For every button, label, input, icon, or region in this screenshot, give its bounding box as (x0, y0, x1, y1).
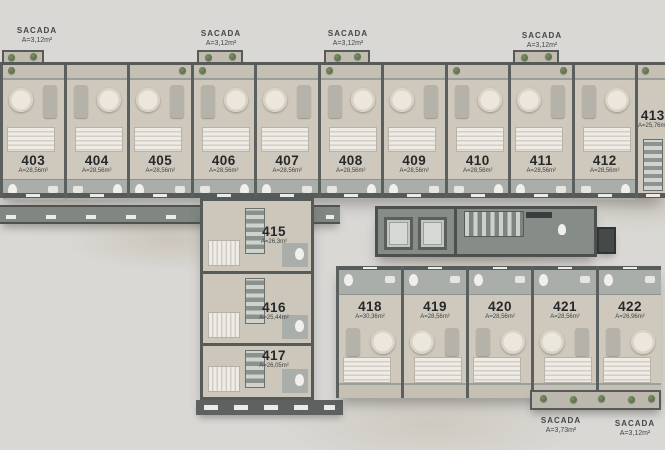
bathroom (339, 270, 401, 295)
unit-406: 406A=28,56m² (191, 65, 255, 198)
bed-area (321, 126, 382, 152)
balcony (324, 50, 370, 64)
unit-balcony (194, 65, 255, 80)
toilet-icon (558, 224, 566, 235)
unit-area: A=28,56m² (511, 168, 572, 175)
unit-area: A=28,56m² (448, 168, 509, 175)
unit-area: A=25,76m² (638, 123, 665, 130)
bathroom (599, 270, 661, 295)
unit-area: A=28,56m² (469, 314, 531, 321)
sink-icon (515, 276, 525, 283)
entry-door (384, 193, 445, 198)
bed-area (67, 126, 128, 152)
plant-icon (179, 67, 186, 74)
entry-door (511, 193, 572, 198)
unit-number: 408 (321, 154, 382, 168)
round-table (263, 88, 287, 112)
unit-balcony (469, 383, 531, 398)
living-area (448, 80, 509, 126)
toilet-icon (295, 248, 304, 260)
sink-icon (429, 186, 439, 193)
unit-area: A=28,56m² (194, 168, 255, 175)
bathroom (282, 243, 308, 267)
unit-number: 404 (67, 154, 128, 168)
sink-icon (454, 186, 464, 193)
sacada-title: SACADA (512, 31, 572, 41)
plant-icon (628, 396, 635, 403)
unit-balcony (511, 65, 572, 80)
bed (515, 127, 563, 152)
plant-icon (326, 67, 333, 74)
unit-421: 421A=28,56m² (531, 266, 596, 398)
sink-icon (200, 186, 210, 193)
stairs (464, 211, 524, 237)
bed-area (384, 126, 445, 152)
unit-410: 410A=28,56m² (445, 65, 509, 198)
bed-area (575, 126, 636, 152)
round-table (631, 330, 655, 354)
bathroom (404, 270, 466, 295)
unit-balcony (67, 65, 128, 80)
core-wall (454, 209, 457, 254)
sofa (606, 328, 620, 356)
sofa (476, 328, 490, 356)
sacada-title: SACADA (531, 416, 591, 426)
plant-icon (229, 53, 236, 60)
bed-area (448, 126, 509, 152)
round-table (371, 330, 395, 354)
sink-icon (385, 276, 395, 283)
plant-icon (30, 53, 37, 60)
sofa (201, 85, 215, 118)
plant-icon (453, 67, 460, 74)
bathroom (282, 369, 308, 393)
bed (75, 127, 123, 152)
sink-icon (327, 186, 337, 193)
bed-area (257, 126, 318, 152)
elevator (384, 217, 413, 250)
sacada-label: SACADA A=3,73m² (531, 416, 591, 435)
sacada-title: SACADA (605, 419, 665, 429)
unit-area: A=25,44m² (245, 315, 303, 322)
unit-area: A=28,56m² (321, 168, 382, 175)
bed (456, 127, 504, 152)
unit-404: 404A=28,56m² (64, 65, 128, 198)
unit-411: 411A=28,56m² (508, 65, 572, 198)
sink-icon (73, 186, 83, 193)
plant-icon (199, 67, 206, 74)
bed-area (130, 126, 191, 152)
unit-number: 418 (339, 300, 401, 314)
unit-area: A=28,56m² (384, 168, 445, 175)
unit-number: 403 (3, 154, 64, 168)
bottom-unit-row: 418A=30,36m² 419A=28,56m² 420A=28,56m² 4… (336, 266, 661, 398)
unit-407: 407A=28,56m² (254, 65, 318, 198)
unit-balcony (321, 65, 382, 80)
elevator (418, 217, 447, 250)
plant-icon (648, 395, 655, 402)
sacada-area: A=3,12m² (318, 39, 378, 48)
unit-balcony (384, 65, 445, 80)
unit-area: A=28,56m² (130, 168, 191, 175)
sink-icon (581, 186, 591, 193)
technical-room (597, 227, 616, 254)
unit-balcony (638, 65, 665, 80)
sofa (455, 85, 469, 118)
sink-icon (450, 276, 460, 283)
unit-number: 420 (469, 300, 531, 314)
plant-icon (521, 54, 528, 61)
balcony (530, 390, 661, 410)
plant-icon (545, 53, 552, 60)
round-table (410, 330, 434, 354)
bed (583, 127, 631, 152)
sacada-area: A=3,73m² (531, 426, 591, 435)
sofa (575, 328, 589, 356)
unit-412: 412A=28,56m² (572, 65, 636, 198)
plant-icon (540, 395, 547, 402)
unit-408: 408A=28,56m² (318, 65, 382, 198)
sofa (74, 85, 88, 118)
round-table (97, 88, 121, 112)
building-core (375, 206, 597, 257)
balcony (2, 50, 44, 64)
living-area (339, 326, 401, 360)
bathroom (469, 270, 531, 295)
living-area (257, 80, 318, 126)
floor-plan: SACADA A=3,12m² SACADA A=3,12m² SACADA A… (0, 0, 665, 450)
entry-door (3, 193, 64, 198)
living-area (384, 80, 445, 126)
unit-area: A=28,56m² (534, 314, 596, 321)
living-area (67, 80, 128, 126)
toilet-icon (409, 274, 418, 286)
unit-number: 416 (245, 301, 303, 315)
unit-area: A=28,56m² (257, 168, 318, 175)
left-wing: 415A=26,3m² 416A=25,44m² 417A=26,05m² (200, 198, 314, 400)
unit-422: 422A=26,96m² (596, 266, 661, 398)
bench (526, 212, 552, 218)
bed (208, 240, 240, 266)
wing-corridor (196, 400, 343, 415)
entry-door (448, 193, 509, 198)
sacada-area: A=3,12m² (512, 41, 572, 50)
sacada-label: SACADA A=3,12m² (318, 29, 378, 48)
plant-icon (570, 396, 577, 403)
top-unit-row: 403A=28,56m² 404A=28,56m² 405A=28,56m² 4… (0, 62, 665, 198)
sacada-area: A=3,12m² (191, 39, 251, 48)
living-area (511, 80, 572, 126)
sofa (170, 85, 184, 118)
bed (343, 357, 391, 383)
bed (473, 357, 521, 383)
toilet-icon (474, 274, 483, 286)
unit-409: 409A=28,56m² (381, 65, 445, 198)
bed (388, 127, 436, 152)
living-area (194, 80, 255, 126)
sink-icon (175, 186, 185, 193)
unit-balcony (575, 65, 636, 80)
sink-icon (645, 276, 655, 283)
unit-balcony (448, 65, 509, 80)
unit-area: A=26,96m² (599, 314, 661, 321)
sacada-title: SACADA (191, 29, 251, 39)
unit-number: 422 (599, 300, 661, 314)
sink-icon (556, 186, 566, 193)
unit-number: 405 (130, 154, 191, 168)
unit-419: 419A=28,56m² (401, 266, 466, 398)
entry-door (638, 193, 665, 198)
toilet-icon (604, 274, 613, 286)
sacada-label: SACADA A=3,12m² (191, 29, 251, 48)
plant-icon (205, 54, 212, 61)
unit-number: 419 (404, 300, 466, 314)
living-area (404, 326, 466, 360)
sofa (445, 328, 459, 356)
bathroom (534, 270, 596, 295)
unit-balcony (404, 383, 466, 398)
sacada-label: SACADA A=3,12m² (605, 419, 665, 438)
plant-icon (598, 395, 605, 402)
entry-door (130, 193, 191, 198)
unit-area: A=26,3m² (245, 239, 303, 246)
living-area (534, 326, 596, 360)
round-table (390, 88, 414, 112)
unit-number: 406 (194, 154, 255, 168)
bed (414, 357, 462, 383)
stairs (643, 139, 663, 191)
sofa (328, 85, 342, 118)
bed-area (194, 126, 255, 152)
entry-door (67, 193, 128, 198)
round-table (351, 88, 375, 112)
bed (134, 127, 182, 152)
sink-icon (48, 186, 58, 193)
bed (261, 127, 309, 152)
living-area (599, 326, 661, 360)
round-table (540, 330, 564, 354)
balcony (513, 50, 559, 64)
unit-number: 412 (575, 154, 636, 168)
unit-number: 411 (511, 154, 572, 168)
toilet-icon (295, 374, 304, 386)
round-table (478, 88, 502, 112)
round-table (136, 88, 160, 112)
unit-418: 418A=30,36m² (336, 266, 401, 398)
plant-icon (8, 67, 15, 74)
bed (208, 366, 240, 392)
sofa (346, 328, 360, 356)
sofa (297, 85, 311, 118)
sink-icon (580, 276, 590, 283)
round-table (517, 88, 541, 112)
round-table (224, 88, 248, 112)
bed-area (3, 126, 64, 152)
sacada-label: SACADA A=3,12m² (512, 31, 572, 50)
unit-balcony (3, 65, 64, 80)
unit-413: 413A=25,76m² (635, 65, 665, 198)
living-area (130, 80, 191, 126)
unit-420: 420A=28,56m² (466, 266, 531, 398)
toilet-icon (344, 274, 353, 286)
sofa (551, 85, 565, 118)
plant-icon (560, 67, 567, 74)
unit-area: A=26,05m² (245, 363, 303, 370)
bed (202, 127, 250, 152)
plant-icon (642, 67, 649, 74)
sacada-title: SACADA (318, 29, 378, 39)
unit-number: 413 (638, 109, 665, 123)
plant-icon (334, 54, 341, 61)
unit-area: A=28,56m² (67, 168, 128, 175)
round-table (501, 330, 525, 354)
unit-area: A=28,56m² (3, 168, 64, 175)
living-area (469, 326, 531, 360)
bed (7, 127, 55, 152)
unit-number: 410 (448, 154, 509, 168)
sofa (582, 85, 596, 118)
sacada-area: A=3,12m² (605, 429, 665, 438)
toilet-icon (539, 274, 548, 286)
unit-number: 417 (245, 349, 303, 363)
sink-icon (302, 186, 312, 193)
round-table (605, 88, 629, 112)
unit-number: 421 (534, 300, 596, 314)
round-table (9, 88, 33, 112)
sofa (43, 85, 57, 118)
sacada-area: A=3,12m² (7, 36, 67, 45)
balcony (197, 50, 243, 64)
unit-balcony (130, 65, 191, 80)
entry-door (321, 193, 382, 198)
bed (544, 357, 592, 383)
sacada-title: SACADA (7, 26, 67, 36)
living-area (3, 80, 64, 126)
living-area (575, 80, 636, 126)
entry-door (575, 193, 636, 198)
unit-number: 409 (384, 154, 445, 168)
sacada-label: SACADA A=3,12m² (7, 26, 67, 45)
bed (329, 127, 377, 152)
bed-area (511, 126, 572, 152)
bed (603, 357, 651, 383)
unit-number: 407 (257, 154, 318, 168)
unit-403: 403A=28,56m² (0, 65, 64, 198)
unit-balcony (257, 65, 318, 80)
unit-number: 415 (245, 225, 303, 239)
unit-balcony (339, 383, 401, 398)
bed (208, 312, 240, 338)
unit-405: 405A=28,56m² (127, 65, 191, 198)
unit-area: A=28,56m² (575, 168, 636, 175)
plant-icon (354, 53, 361, 60)
sofa (424, 85, 438, 118)
unit-area: A=30,36m² (339, 314, 401, 321)
living-area (321, 80, 382, 126)
unit-area: A=28,56m² (404, 314, 466, 321)
plant-icon (8, 54, 15, 61)
